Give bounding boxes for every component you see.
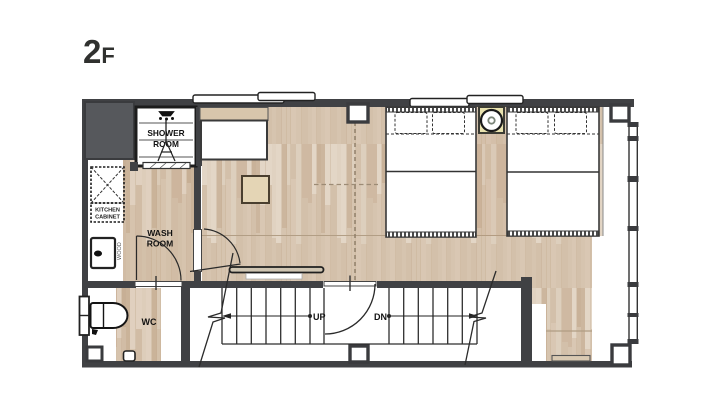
svg-text:UP: UP [313, 312, 326, 322]
svg-text:WASH: WASH [147, 228, 173, 238]
svg-text:WC: WC [142, 317, 157, 327]
svg-text:KITCHEN: KITCHEN [95, 208, 120, 214]
svg-text:ROOM: ROOM [147, 239, 173, 249]
svg-text:WOOD: WOOD [117, 242, 123, 260]
svg-text:CABINET: CABINET [95, 215, 120, 221]
svg-text:DN: DN [374, 312, 387, 322]
